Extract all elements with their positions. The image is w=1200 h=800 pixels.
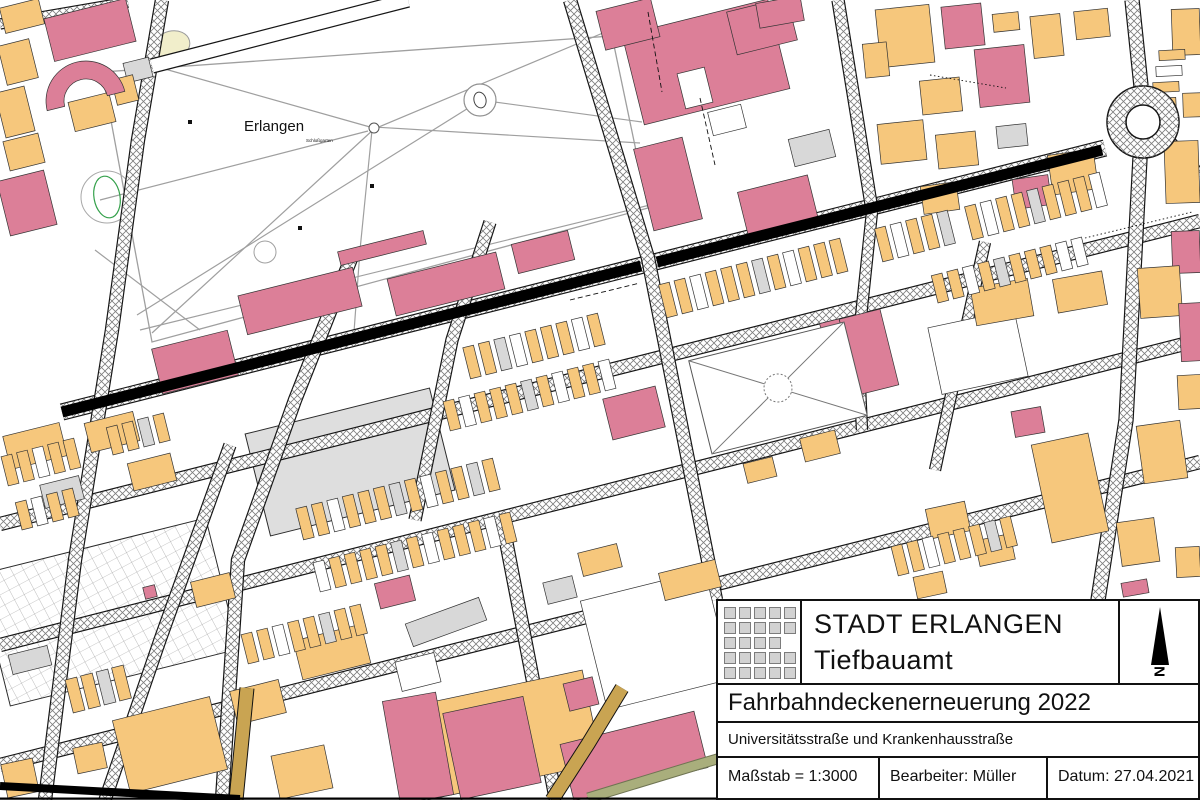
logo-square [724, 622, 736, 634]
stadt-erlangen-logo [718, 601, 802, 683]
logo-square [754, 667, 766, 679]
logo-square [724, 607, 736, 619]
logo-square [754, 622, 766, 634]
project-title: Fahrbahndeckenerneuerung 2022 [718, 685, 1198, 723]
logo-square [739, 622, 751, 634]
logo-square [784, 652, 796, 664]
logo-square [724, 667, 736, 679]
north-label: N [1151, 666, 1168, 677]
logo-square [769, 607, 781, 619]
project-subtitle: Universitätsstraße und Krankenhausstraße [718, 723, 1198, 758]
map-label: Schloßgarten [306, 138, 333, 143]
map-sheet: ErlangenSchloßgarten STADT ERLANGEN Tief… [0, 0, 1200, 800]
logo-square [739, 637, 751, 649]
logo-square [754, 652, 766, 664]
map-label: Erlangen [244, 118, 304, 135]
logo-square [739, 652, 751, 664]
logo-square [769, 622, 781, 634]
organization: STADT ERLANGEN Tiefbauamt [802, 601, 1118, 683]
logo-square [784, 667, 796, 679]
logo-square [739, 607, 751, 619]
scale-field: Maßstab = 1:3000 [718, 758, 880, 798]
title-block: STADT ERLANGEN Tiefbauamt N Fahrbahndeck… [716, 599, 1200, 800]
north-indicator: N [1118, 601, 1198, 683]
logo-square [724, 637, 736, 649]
logo-square [769, 637, 781, 649]
logo-square [769, 667, 781, 679]
org-department: Tiefbauamt [814, 642, 1118, 678]
logo-square [754, 637, 766, 649]
logo-square [754, 607, 766, 619]
logo-square [739, 667, 751, 679]
roundabout [1107, 86, 1179, 158]
logo-square [784, 637, 796, 649]
logo-square [724, 652, 736, 664]
editor-field: Bearbeiter: Müller [880, 758, 1048, 798]
date-field: Datum: 27.04.2021 [1048, 758, 1198, 798]
logo-square [784, 622, 796, 634]
title-block-header-row: STADT ERLANGEN Tiefbauamt N [718, 601, 1198, 685]
org-name: STADT ERLANGEN [814, 606, 1118, 642]
logo-square [784, 607, 796, 619]
title-block-footer-row: Maßstab = 1:3000 Bearbeiter: Müller Datu… [718, 758, 1198, 798]
logo-square [769, 652, 781, 664]
